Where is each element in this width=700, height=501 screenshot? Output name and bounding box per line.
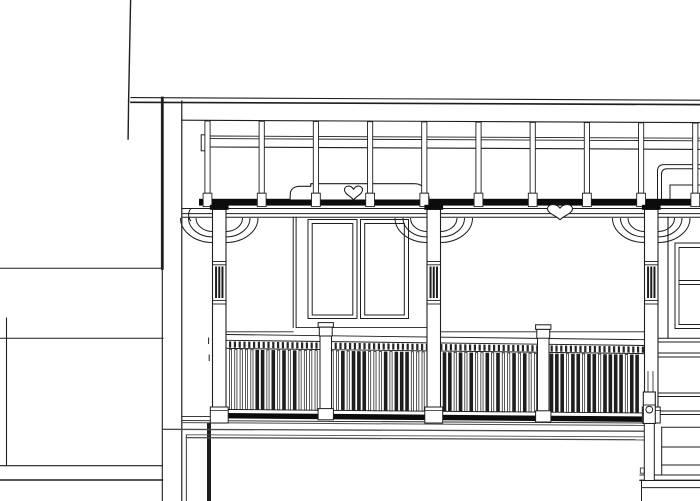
- stair-newel-post: [640, 372, 655, 481]
- balustrade-railing: [182, 335, 645, 424]
- architectural-elevation-drawing: [0, 0, 700, 501]
- cad-drawing-viewport: [0, 0, 700, 501]
- pergola-rafter-posts: [201, 121, 700, 207]
- left-wall-lines: [0, 98, 209, 501]
- deck-band: [163, 423, 644, 440]
- roof-eave: [128, 0, 700, 139]
